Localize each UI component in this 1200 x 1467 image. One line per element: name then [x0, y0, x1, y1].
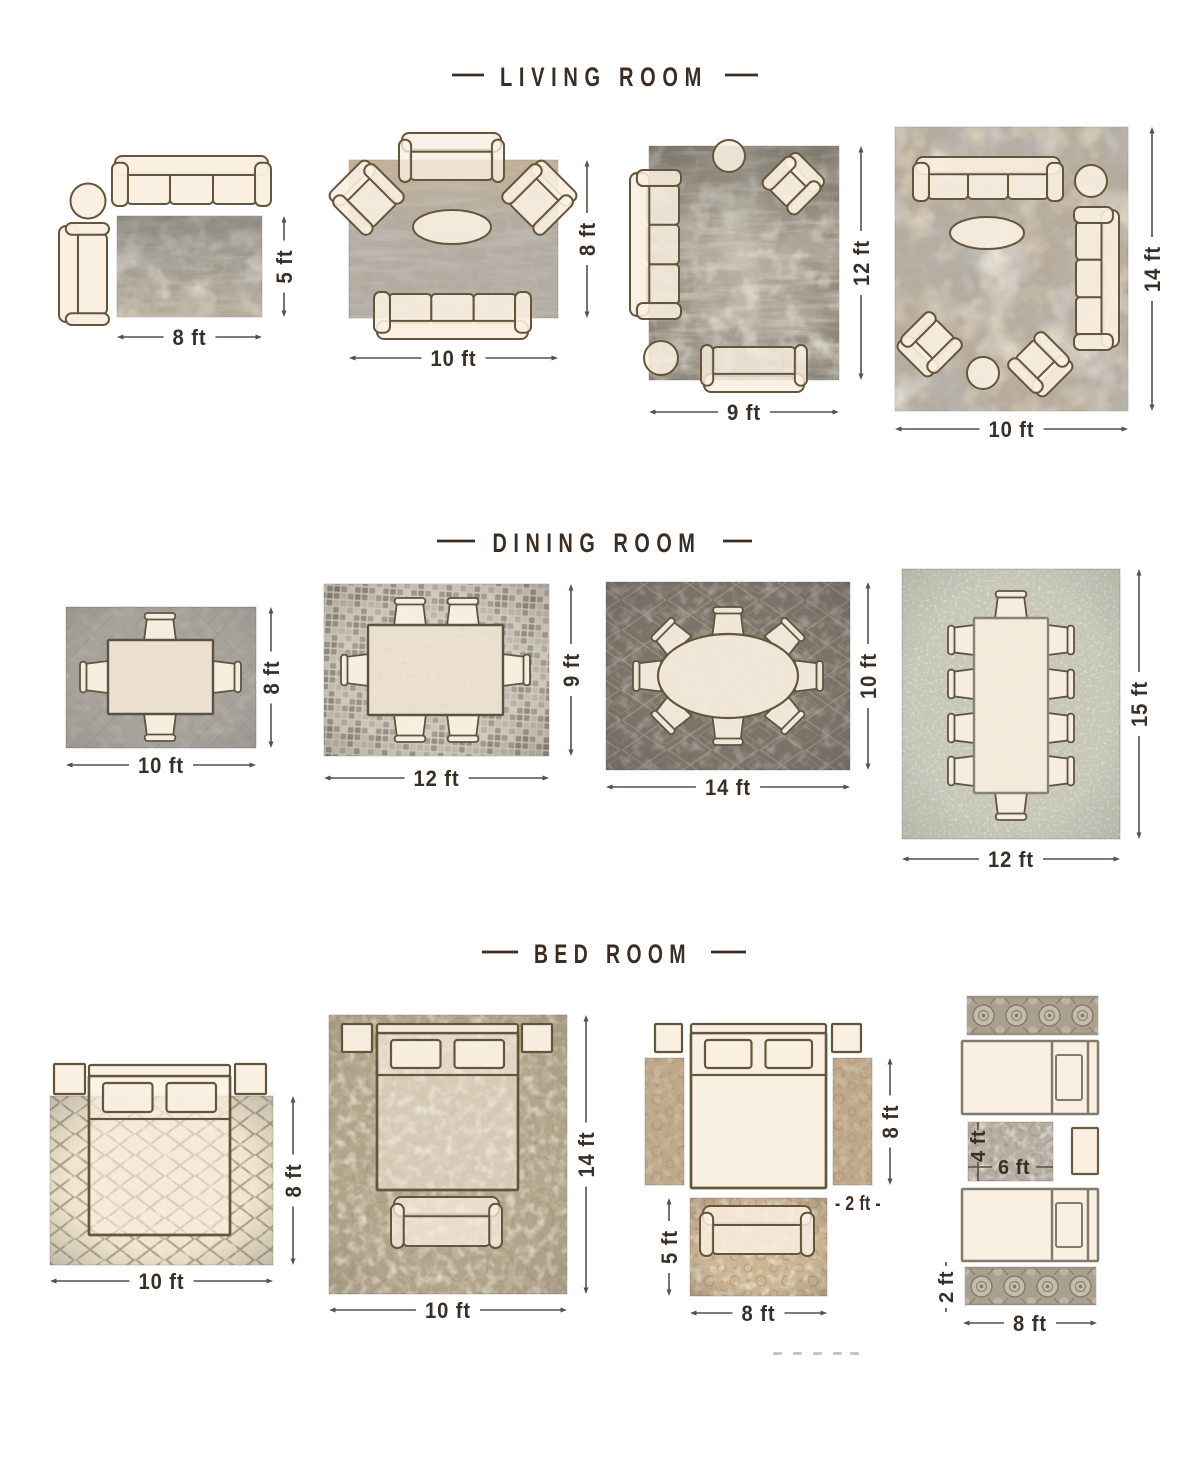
svg-text:15 ft: 15 ft	[1127, 681, 1152, 727]
svg-text:10 ft: 10 ft	[139, 1269, 185, 1294]
svg-text:5 ft: 5 ft	[657, 1230, 682, 1264]
svg-text:14 ft: 14 ft	[574, 1132, 599, 1178]
svg-text:8 ft: 8 ft	[173, 325, 207, 350]
svg-text:10 ft: 10 ft	[138, 753, 184, 778]
svg-text:4 ft: 4 ft	[968, 1130, 990, 1162]
svg-text:9 ft: 9 ft	[727, 400, 761, 425]
svg-text:8 ft: 8 ft	[1013, 1311, 1047, 1336]
svg-text:8 ft: 8 ft	[281, 1164, 306, 1198]
svg-text:- 2 ft -: - 2 ft -	[835, 1193, 881, 1215]
svg-text:10 ft: 10 ft	[425, 1298, 471, 1323]
svg-text:2 ft: 2 ft	[936, 1271, 958, 1303]
svg-text:12 ft: 12 ft	[849, 240, 874, 286]
svg-text:14 ft: 14 ft	[705, 775, 751, 800]
svg-text:5 ft: 5 ft	[272, 250, 297, 284]
svg-text:12 ft: 12 ft	[414, 766, 460, 791]
svg-text:10 ft: 10 ft	[856, 653, 881, 699]
svg-text:8 ft: 8 ft	[575, 222, 600, 256]
svg-text:10 ft: 10 ft	[431, 346, 477, 371]
svg-text:LIVING ROOM: LIVING ROOM	[500, 62, 708, 92]
svg-text:12 ft: 12 ft	[988, 847, 1034, 872]
svg-text:14 ft: 14 ft	[1140, 246, 1165, 292]
svg-text:6 ft: 6 ft	[998, 1157, 1030, 1179]
svg-text:8 ft: 8 ft	[878, 1105, 903, 1139]
svg-text:10 ft: 10 ft	[989, 417, 1035, 442]
svg-text:DINING ROOM: DINING ROOM	[493, 528, 702, 558]
svg-text:8 ft: 8 ft	[259, 661, 284, 695]
svg-text:8 ft: 8 ft	[742, 1301, 776, 1326]
svg-text:BED ROOM: BED ROOM	[534, 939, 692, 969]
svg-text:9 ft: 9 ft	[559, 653, 584, 687]
